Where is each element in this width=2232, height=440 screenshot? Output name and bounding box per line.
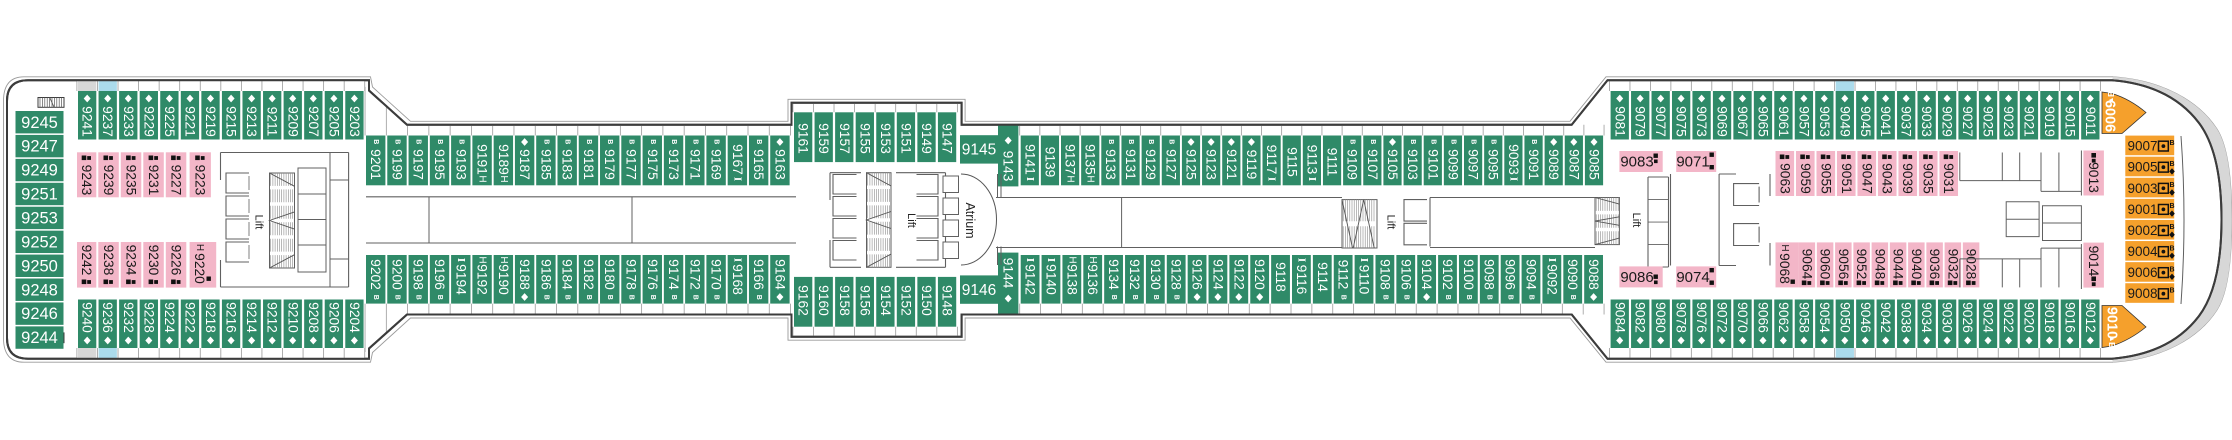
- svg-text:9068: 9068: [1777, 253, 1792, 284]
- svg-text:9166: 9166: [751, 259, 766, 290]
- svg-text:B: B: [670, 295, 677, 300]
- svg-text:Atrium: Atrium: [963, 202, 977, 238]
- svg-text:9039: 9039: [1900, 163, 1915, 194]
- svg-text:9173: 9173: [666, 149, 681, 180]
- svg-text:H: H: [498, 256, 509, 263]
- svg-text:9125: 9125: [1184, 149, 1199, 180]
- svg-text:9027: 9027: [1960, 106, 1975, 137]
- svg-text:B: B: [2170, 182, 2175, 189]
- svg-text:9079: 9079: [1633, 106, 1648, 137]
- svg-text:B: B: [649, 295, 656, 300]
- svg-text:9148: 9148: [940, 285, 955, 316]
- svg-text:9152: 9152: [898, 285, 913, 316]
- svg-text:9055: 9055: [1818, 163, 1833, 194]
- svg-text:9223: 9223: [193, 165, 208, 196]
- svg-text:9237: 9237: [100, 106, 115, 137]
- svg-text:B: B: [1107, 139, 1114, 144]
- svg-text:I: I: [1024, 258, 1036, 262]
- svg-text:9070: 9070: [1735, 302, 1750, 333]
- svg-text:9065: 9065: [1756, 106, 1771, 137]
- svg-text:Lift: Lift: [253, 215, 265, 230]
- svg-text:9045: 9045: [1858, 106, 1873, 137]
- svg-text:B: B: [1402, 295, 1409, 300]
- svg-text:9075: 9075: [1674, 106, 1689, 137]
- svg-text:B: B: [1429, 139, 1436, 144]
- svg-text:B: B: [2170, 224, 2175, 231]
- svg-text:B: B: [1147, 139, 1154, 144]
- svg-text:9145: 9145: [962, 142, 996, 159]
- svg-text:I: I: [1507, 177, 1519, 181]
- svg-text:B: B: [1369, 139, 1376, 144]
- svg-text:9016: 9016: [2062, 302, 2077, 333]
- svg-text:9192: 9192: [475, 264, 490, 295]
- svg-text:9056: 9056: [1836, 249, 1851, 280]
- svg-text:9245: 9245: [21, 114, 58, 132]
- svg-text:9058: 9058: [1796, 302, 1811, 333]
- svg-text:9120: 9120: [1252, 259, 1267, 290]
- svg-text:9078: 9078: [1674, 302, 1689, 333]
- svg-text:9213: 9213: [244, 106, 259, 137]
- svg-text:B: B: [606, 295, 613, 300]
- svg-text:9127: 9127: [1163, 149, 1178, 180]
- svg-text:I: I: [455, 258, 467, 262]
- svg-text:9181: 9181: [581, 149, 596, 180]
- svg-text:9031: 9031: [1941, 163, 1956, 194]
- svg-text:9013: 9013: [2086, 162, 2101, 193]
- svg-text:9138: 9138: [1064, 264, 1079, 295]
- svg-text:9008: 9008: [2128, 286, 2158, 301]
- svg-text:B: B: [1449, 139, 1456, 144]
- svg-text:9210: 9210: [285, 302, 300, 333]
- svg-text:9183: 9183: [560, 149, 575, 180]
- svg-text:9098: 9098: [1482, 259, 1497, 290]
- svg-text:9248: 9248: [21, 281, 58, 299]
- svg-text:9186: 9186: [538, 259, 553, 290]
- svg-text:9050: 9050: [1837, 302, 1852, 333]
- svg-text:9104: 9104: [1419, 259, 1434, 290]
- svg-text:9235: 9235: [124, 165, 139, 196]
- svg-text:9063: 9063: [1777, 163, 1792, 194]
- svg-text:9175: 9175: [645, 149, 660, 180]
- svg-text:B: B: [564, 295, 571, 300]
- svg-text:H: H: [194, 244, 205, 251]
- svg-text:9190: 9190: [496, 264, 511, 295]
- svg-text:9002: 9002: [2128, 223, 2158, 238]
- svg-text:9174: 9174: [666, 259, 681, 290]
- svg-text:B: B: [1530, 139, 1537, 144]
- svg-text:9219: 9219: [203, 106, 218, 137]
- svg-text:9172: 9172: [687, 259, 702, 290]
- svg-text:B: B: [628, 295, 635, 300]
- svg-text:9092: 9092: [1544, 264, 1559, 295]
- svg-text:9250: 9250: [21, 257, 58, 275]
- svg-text:9057: 9057: [1796, 106, 1811, 137]
- svg-text:9140: 9140: [1044, 264, 1059, 295]
- svg-text:9018: 9018: [2042, 302, 2057, 333]
- svg-text:9136: 9136: [1085, 264, 1100, 295]
- svg-text:9005: 9005: [2128, 160, 2158, 175]
- svg-text:Lift: Lift: [1630, 213, 1642, 228]
- svg-text:B: B: [691, 139, 698, 144]
- svg-text:9165: 9165: [751, 149, 766, 180]
- svg-text:9163: 9163: [772, 149, 787, 180]
- svg-text:9135: 9135: [1083, 144, 1098, 175]
- svg-text:9086: 9086: [1620, 269, 1653, 286]
- svg-text:9032: 9032: [1945, 249, 1960, 280]
- svg-text:9021: 9021: [2022, 106, 2037, 137]
- svg-text:9147: 9147: [940, 123, 955, 154]
- svg-text:B: B: [585, 139, 592, 144]
- svg-text:9067: 9067: [1735, 106, 1750, 137]
- svg-text:9037: 9037: [1899, 106, 1914, 137]
- svg-text:9033: 9033: [1919, 106, 1934, 137]
- svg-text:B: B: [691, 295, 698, 300]
- svg-text:B: B: [606, 139, 613, 144]
- svg-text:9111: 9111: [1325, 148, 1340, 177]
- svg-text:9085: 9085: [1587, 149, 1602, 180]
- svg-text:9001: 9001: [2128, 202, 2158, 217]
- svg-text:B: B: [542, 295, 549, 300]
- svg-text:H: H: [498, 175, 509, 182]
- svg-text:I: I: [1024, 177, 1036, 181]
- svg-text:9191: 9191: [475, 144, 490, 175]
- svg-text:9099: 9099: [1445, 149, 1460, 180]
- svg-text:9228: 9228: [141, 302, 156, 333]
- svg-text:9097: 9097: [1466, 149, 1481, 180]
- svg-text:9168: 9168: [730, 264, 745, 295]
- svg-text:9133: 9133: [1103, 149, 1118, 180]
- svg-text:9080: 9080: [1653, 302, 1668, 333]
- svg-text:9246: 9246: [21, 305, 58, 323]
- svg-text:9124: 9124: [1210, 259, 1225, 290]
- svg-text:9207: 9207: [306, 106, 321, 137]
- svg-text:B: B: [372, 295, 379, 300]
- svg-text:9177: 9177: [624, 149, 639, 180]
- svg-text:9035: 9035: [1921, 163, 1936, 194]
- svg-text:9169: 9169: [709, 149, 724, 180]
- svg-text:B: B: [1349, 139, 1356, 144]
- svg-text:9200: 9200: [390, 259, 405, 290]
- svg-text:H: H: [477, 256, 488, 263]
- svg-text:9061: 9061: [1776, 106, 1791, 137]
- svg-text:9052: 9052: [1854, 249, 1869, 280]
- svg-text:9194: 9194: [453, 264, 468, 295]
- svg-text:B: B: [1470, 139, 1477, 144]
- svg-text:B: B: [394, 139, 401, 144]
- svg-text:9239: 9239: [101, 165, 116, 196]
- svg-text:9151: 9151: [898, 123, 913, 154]
- svg-text:9139: 9139: [1043, 147, 1058, 178]
- svg-text:9156: 9156: [857, 285, 872, 316]
- svg-text:9193: 9193: [453, 149, 468, 180]
- svg-text:9126: 9126: [1190, 259, 1205, 290]
- svg-text:I: I: [1045, 258, 1057, 262]
- svg-text:9024: 9024: [1981, 302, 1996, 333]
- svg-text:9028: 9028: [1964, 249, 1979, 280]
- svg-text:9214: 9214: [244, 302, 259, 333]
- svg-text:9201: 9201: [368, 149, 383, 180]
- svg-text:9129: 9129: [1143, 149, 1158, 180]
- svg-text:9182: 9182: [581, 259, 596, 290]
- svg-text:9226: 9226: [169, 245, 184, 276]
- svg-text:9082: 9082: [1633, 302, 1648, 333]
- svg-text:9232: 9232: [121, 302, 136, 333]
- svg-text:9205: 9205: [326, 106, 341, 137]
- svg-text:9170: 9170: [709, 259, 724, 290]
- svg-text:9110: 9110: [1357, 265, 1372, 295]
- svg-text:B: B: [1152, 295, 1159, 300]
- svg-text:9119: 9119: [1244, 150, 1259, 180]
- svg-text:9188: 9188: [517, 259, 532, 290]
- svg-text:9012: 9012: [2083, 302, 2098, 333]
- svg-text:B: B: [755, 295, 762, 300]
- svg-text:9053: 9053: [1817, 106, 1832, 137]
- svg-text:9233: 9233: [121, 106, 136, 137]
- svg-text:9218: 9218: [203, 302, 218, 333]
- svg-text:9142: 9142: [1023, 264, 1038, 295]
- svg-text:9076: 9076: [1694, 302, 1709, 333]
- svg-text:9229: 9229: [141, 106, 156, 137]
- svg-text:9020: 9020: [2022, 302, 2037, 333]
- svg-text:9040: 9040: [1909, 249, 1924, 280]
- svg-text:H: H: [1779, 244, 1790, 251]
- svg-text:9234: 9234: [124, 245, 139, 276]
- svg-text:B: B: [585, 295, 592, 300]
- svg-text:B: B: [2170, 245, 2175, 252]
- svg-text:9206: 9206: [326, 302, 341, 333]
- svg-text:9089: 9089: [1546, 149, 1561, 180]
- svg-text:9003: 9003: [2128, 181, 2158, 196]
- svg-text:9202: 9202: [368, 259, 383, 290]
- svg-text:9198: 9198: [411, 259, 426, 290]
- svg-text:9249: 9249: [21, 162, 58, 180]
- svg-text:9093: 9093: [1506, 144, 1521, 175]
- svg-text:9209: 9209: [285, 106, 300, 137]
- svg-text:I: I: [1358, 258, 1370, 262]
- svg-text:9215: 9215: [224, 106, 239, 137]
- svg-text:B: B: [628, 139, 635, 144]
- svg-text:9158: 9158: [837, 285, 852, 316]
- svg-text:9187: 9187: [517, 149, 532, 180]
- svg-text:9244: 9244: [21, 329, 58, 347]
- svg-text:9060: 9060: [1818, 249, 1833, 280]
- svg-text:I: I: [731, 258, 743, 262]
- svg-text:9162: 9162: [796, 285, 811, 316]
- svg-text:9243: 9243: [79, 165, 94, 196]
- svg-text:9084: 9084: [1612, 302, 1627, 333]
- svg-text:9105: 9105: [1385, 149, 1400, 180]
- svg-text:9090: 9090: [1565, 259, 1580, 290]
- svg-text:9100: 9100: [1461, 259, 1476, 290]
- svg-text:9221: 9221: [183, 106, 198, 137]
- svg-text:B: B: [542, 139, 549, 144]
- svg-text:9096: 9096: [1503, 259, 1518, 290]
- svg-text:9102: 9102: [1440, 259, 1455, 290]
- svg-text:9069: 9069: [1715, 106, 1730, 137]
- svg-text:9118: 9118: [1273, 262, 1288, 292]
- svg-text:B: B: [436, 139, 443, 144]
- svg-text:9161: 9161: [796, 123, 811, 154]
- svg-text:9022: 9022: [2001, 302, 2016, 333]
- svg-text:9059: 9059: [1798, 163, 1813, 194]
- svg-text:B: B: [649, 139, 656, 144]
- svg-text:9211: 9211: [265, 107, 280, 137]
- svg-text:9251: 9251: [21, 186, 58, 204]
- svg-text:9236: 9236: [100, 302, 115, 333]
- svg-text:B: B: [1381, 295, 1388, 300]
- svg-text:I: I: [1266, 177, 1278, 181]
- svg-text:9042: 9042: [1878, 302, 1893, 333]
- svg-text:9132: 9132: [1127, 259, 1142, 290]
- svg-text:9049: 9049: [1837, 106, 1852, 137]
- svg-text:9220: 9220: [192, 253, 207, 284]
- svg-text:B: B: [1409, 139, 1416, 144]
- svg-text:9241: 9241: [80, 106, 95, 137]
- svg-text:9141: 9141: [1022, 144, 1037, 175]
- svg-text:9047: 9047: [1859, 163, 1874, 194]
- svg-text:B: B: [415, 295, 422, 300]
- svg-text:9025: 9025: [1981, 106, 1996, 137]
- svg-text:9184: 9184: [560, 259, 575, 290]
- svg-text:9006: 9006: [2128, 265, 2158, 280]
- svg-text:9196: 9196: [432, 259, 447, 290]
- svg-text:9189: 9189: [496, 144, 511, 175]
- svg-text:9154: 9154: [878, 285, 893, 316]
- svg-text:9034: 9034: [1919, 302, 1934, 333]
- svg-text:9038: 9038: [1899, 302, 1914, 333]
- svg-text:B: B: [564, 139, 571, 144]
- svg-text:B: B: [713, 295, 720, 300]
- svg-text:9252: 9252: [21, 234, 58, 252]
- svg-text:9051: 9051: [1839, 163, 1854, 194]
- svg-text:9014: 9014: [2086, 246, 2101, 277]
- svg-text:9101: 9101: [1425, 149, 1440, 180]
- svg-text:9150: 9150: [919, 285, 934, 316]
- svg-text:9178: 9178: [624, 259, 639, 290]
- svg-text:B: B: [436, 295, 443, 300]
- svg-text:9048: 9048: [1872, 249, 1887, 280]
- svg-text:9122: 9122: [1231, 259, 1246, 290]
- svg-text:9088: 9088: [1586, 259, 1601, 290]
- svg-text:9121: 9121: [1224, 149, 1239, 180]
- svg-text:9185: 9185: [538, 149, 553, 180]
- svg-text:9199: 9199: [390, 149, 405, 180]
- svg-text:9115: 9115: [1284, 147, 1299, 177]
- svg-text:9041: 9041: [1878, 106, 1893, 137]
- svg-text:B: B: [1507, 295, 1514, 300]
- svg-text:9171: 9171: [687, 149, 702, 180]
- svg-text:9106: 9106: [1398, 259, 1413, 290]
- svg-text:9009: 9009: [2104, 100, 2120, 132]
- svg-text:B: B: [1110, 295, 1117, 300]
- svg-text:9227: 9227: [169, 165, 184, 196]
- svg-text:9026: 9026: [1960, 302, 1975, 333]
- svg-text:B: B: [670, 139, 677, 144]
- svg-text:9019: 9019: [2042, 106, 2057, 137]
- svg-text:9114: 9114: [1315, 262, 1330, 292]
- svg-text:9030: 9030: [1940, 302, 1955, 333]
- svg-text:9108: 9108: [1377, 259, 1392, 290]
- svg-text:9153: 9153: [878, 123, 893, 154]
- svg-text:9164: 9164: [772, 259, 787, 290]
- svg-text:B: B: [415, 139, 422, 144]
- svg-text:I: I: [731, 177, 743, 181]
- svg-text:9224: 9224: [162, 302, 177, 333]
- svg-text:9146: 9146: [962, 282, 996, 299]
- svg-text:B: B: [713, 139, 720, 144]
- svg-text:9137: 9137: [1063, 144, 1078, 175]
- svg-text:9010: 9010: [2104, 307, 2120, 339]
- svg-text:9054: 9054: [1817, 302, 1832, 333]
- svg-text:B: B: [2107, 91, 2116, 97]
- svg-text:9043: 9043: [1880, 163, 1895, 194]
- svg-text:B: B: [2170, 161, 2175, 168]
- svg-text:B: B: [394, 295, 401, 300]
- svg-text:I: I: [1306, 177, 1318, 181]
- svg-text:9216: 9216: [224, 302, 239, 333]
- svg-text:9023: 9023: [2001, 106, 2016, 137]
- svg-text:9253: 9253: [21, 210, 58, 228]
- svg-text:I: I: [1546, 258, 1558, 262]
- svg-text:9095: 9095: [1486, 149, 1501, 180]
- svg-text:9007: 9007: [2128, 139, 2158, 154]
- svg-text:9160: 9160: [816, 285, 831, 316]
- svg-text:9071: 9071: [1676, 154, 1709, 171]
- svg-text:B: B: [372, 139, 379, 144]
- svg-text:9015: 9015: [2062, 106, 2077, 137]
- svg-text:9109: 9109: [1345, 149, 1360, 180]
- svg-text:9123: 9123: [1204, 149, 1219, 180]
- svg-text:9107: 9107: [1365, 149, 1380, 180]
- svg-text:B: B: [1569, 295, 1576, 300]
- svg-text:9112: 9112: [1336, 260, 1351, 290]
- svg-text:B: B: [1127, 139, 1134, 144]
- svg-text:9204: 9204: [347, 302, 362, 333]
- svg-text:B: B: [1173, 295, 1180, 300]
- svg-text:B: B: [2107, 342, 2116, 348]
- svg-text:H: H: [1085, 175, 1096, 182]
- svg-text:9029: 9029: [1940, 106, 1955, 137]
- svg-text:9113: 9113: [1304, 145, 1319, 175]
- svg-text:9180: 9180: [602, 259, 617, 290]
- svg-text:9157: 9157: [837, 123, 852, 154]
- svg-text:9103: 9103: [1405, 149, 1420, 180]
- svg-text:9222: 9222: [183, 302, 198, 333]
- svg-text:9072: 9072: [1715, 302, 1730, 333]
- svg-text:B: B: [1486, 295, 1493, 300]
- svg-text:B: B: [2170, 203, 2175, 210]
- svg-text:H: H: [1087, 256, 1098, 263]
- svg-text:9128: 9128: [1169, 259, 1184, 290]
- svg-text:B: B: [755, 139, 762, 144]
- svg-text:H: H: [1066, 256, 1077, 263]
- svg-text:H: H: [477, 175, 488, 182]
- svg-text:H: H: [1065, 175, 1076, 182]
- svg-text:Lift: Lift: [1385, 215, 1397, 230]
- svg-text:B: B: [2170, 140, 2175, 147]
- svg-text:B: B: [2170, 266, 2175, 273]
- svg-text:9144: 9144: [1001, 258, 1016, 289]
- svg-text:9195: 9195: [432, 149, 447, 180]
- svg-text:9225: 9225: [162, 106, 177, 137]
- svg-text:B: B: [2170, 287, 2175, 294]
- svg-text:I: I: [1295, 258, 1307, 262]
- svg-text:9212: 9212: [265, 302, 280, 333]
- svg-text:9203: 9203: [347, 106, 362, 137]
- svg-text:B: B: [457, 139, 464, 144]
- svg-text:9077: 9077: [1653, 106, 1668, 137]
- svg-text:9238: 9238: [101, 245, 116, 276]
